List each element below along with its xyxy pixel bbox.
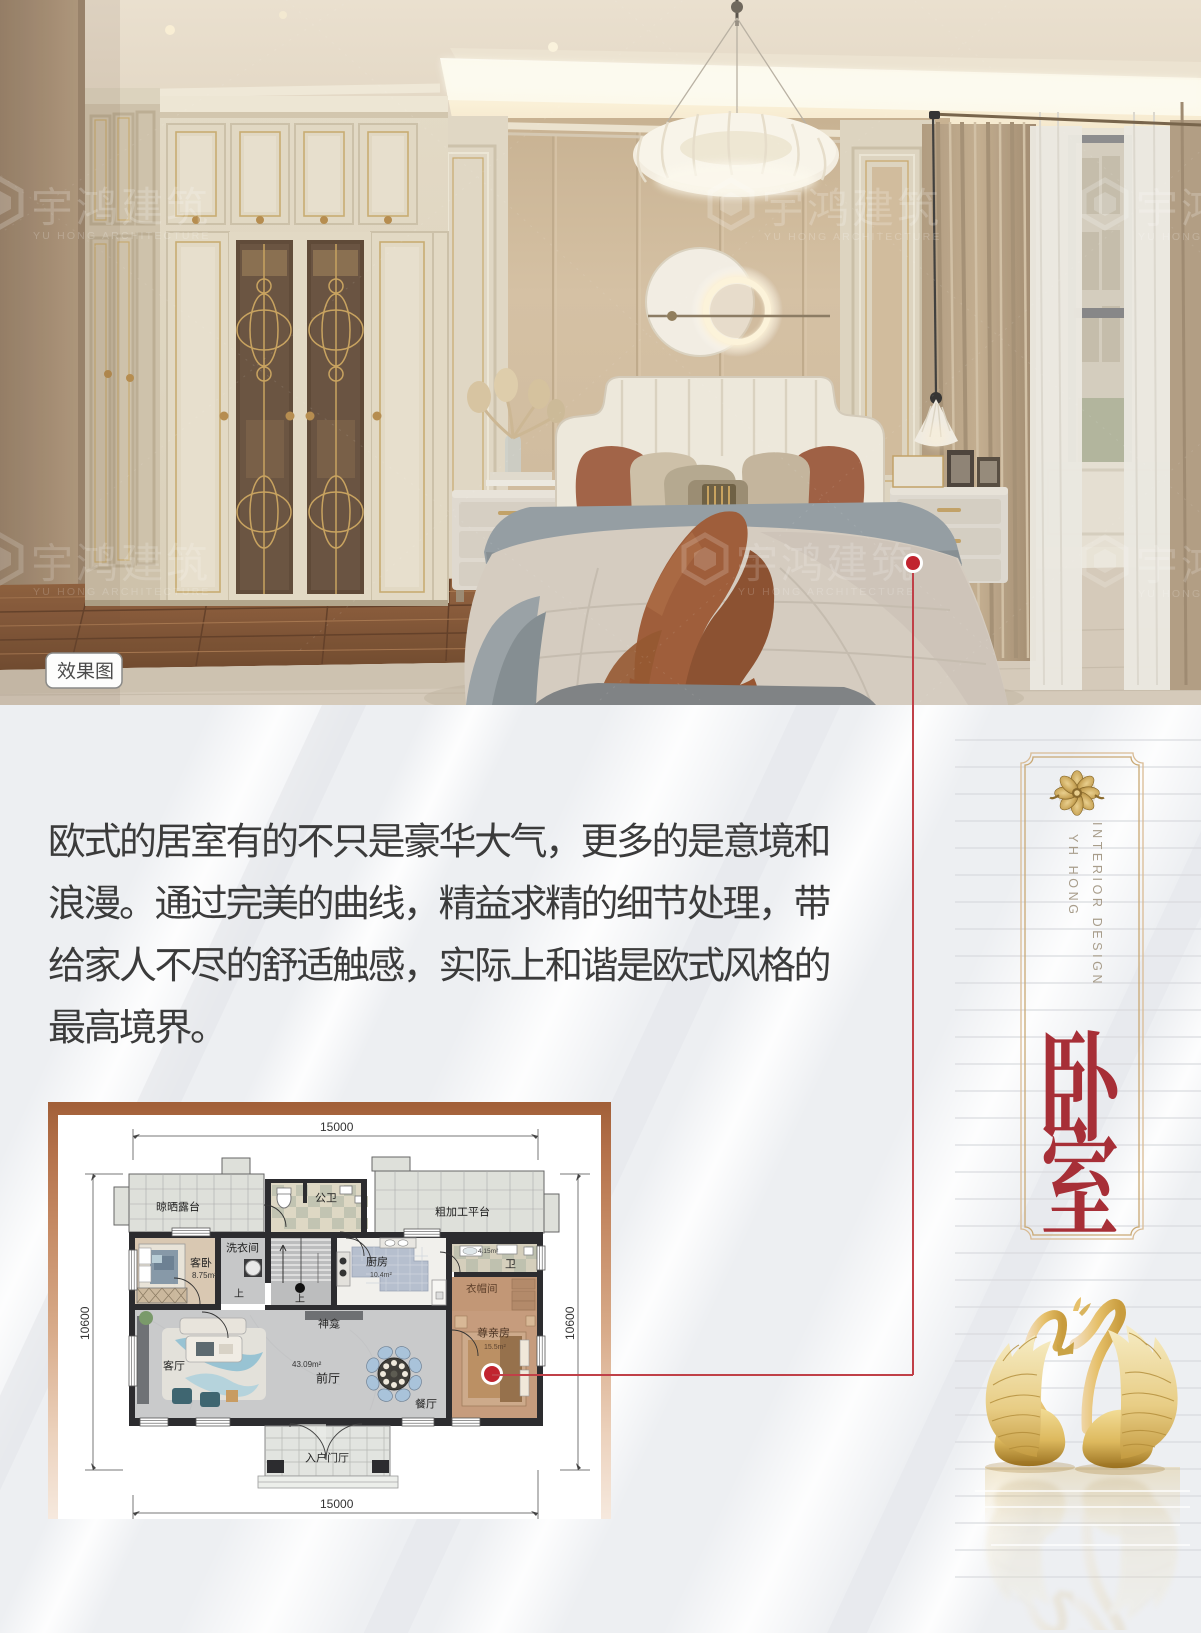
svg-text:INTERIOR DESIGN: INTERIOR DESIGN — [1090, 822, 1104, 987]
svg-text:YU HONG ARCHITECTURE: YU HONG ARCHITECTURE — [1138, 588, 1201, 600]
svg-text:4.15m²: 4.15m² — [478, 1248, 499, 1255]
svg-text:YU HONG ARCHITECTURE: YU HONG ARCHITECTURE — [33, 586, 211, 598]
svg-text:43.09m²: 43.09m² — [292, 1360, 322, 1369]
svg-text:15000: 15000 — [320, 1120, 354, 1134]
svg-text:YU HONG ARCHITECTURE: YU HONG ARCHITECTURE — [33, 230, 211, 242]
svg-text:YU HONG ARCHITECTURE: YU HONG ARCHITECTURE — [738, 586, 916, 598]
svg-text:15000: 15000 — [320, 1497, 354, 1511]
svg-text:YU HONG ARCHITECTURE: YU HONG ARCHITECTURE — [1138, 231, 1201, 243]
svg-text:8.75m²: 8.75m² — [192, 1271, 217, 1280]
svg-text:15.5m²: 15.5m² — [484, 1344, 506, 1351]
svg-text:10.4m²: 10.4m² — [370, 1272, 392, 1279]
svg-text:YU HONG ARCHITECTURE: YU HONG ARCHITECTURE — [764, 231, 942, 243]
svg-text:YH HONG: YH HONG — [1066, 834, 1080, 918]
svg-text:10600: 10600 — [78, 1306, 92, 1340]
svg-text:10600: 10600 — [563, 1306, 577, 1340]
